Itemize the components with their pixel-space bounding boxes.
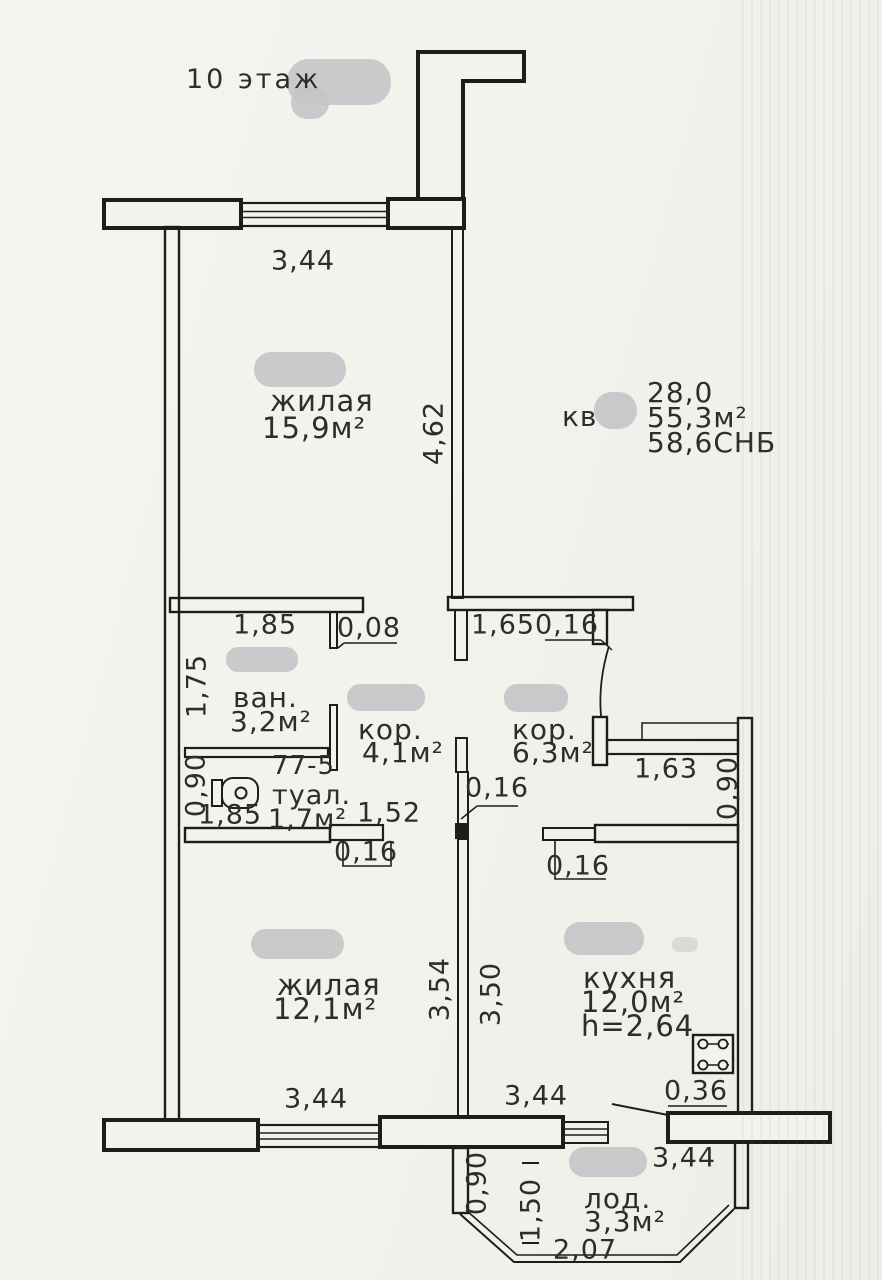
bottom-wall-mid-block bbox=[380, 1117, 563, 1147]
redaction-smudge bbox=[672, 937, 698, 952]
room-living2-area: 12,1м² bbox=[273, 992, 377, 1026]
loggia-right-stub bbox=[735, 1142, 748, 1208]
dim-hall-opening: 1,65 bbox=[471, 610, 535, 641]
redaction-blob-apartment-no bbox=[594, 392, 637, 429]
dim-living1-depth: 4,62 bbox=[419, 401, 450, 465]
redaction-blob-kitchen bbox=[564, 922, 644, 955]
floor-plan-scan: 10 этаж кв 28,0 55,3м² 58,6СНБ жилая 15,… bbox=[0, 0, 882, 1280]
bottom-wall-left-block bbox=[104, 1120, 258, 1150]
dim-kitchen-depth: 3,50 bbox=[476, 962, 507, 1026]
room-hall2-area: 6,3м² bbox=[512, 736, 594, 769]
dim-bath-jamb: 0,08 bbox=[337, 613, 401, 644]
redaction-blob-living2 bbox=[251, 929, 344, 959]
redaction-blob-bath bbox=[226, 647, 298, 672]
dim-mid-wall: 0,16 bbox=[465, 773, 529, 804]
room-living1-area: 15,9м² bbox=[262, 411, 366, 445]
left-exterior-wall bbox=[165, 227, 179, 1123]
entry-door-leaf bbox=[600, 646, 609, 716]
floor-title: 10 этаж bbox=[186, 64, 321, 95]
room-hall1-area: 4,1м² bbox=[362, 736, 444, 769]
dim-hall-jamb: 0,16 bbox=[535, 610, 599, 641]
hall-top-wall bbox=[448, 597, 633, 610]
dim-hall-window: 3,44 bbox=[504, 1081, 568, 1112]
room-kitchen-ceiling: h=2,64 bbox=[581, 1009, 694, 1043]
unit-mark: 77-5 bbox=[272, 751, 335, 781]
kitchen-top-wall bbox=[595, 825, 738, 842]
dim-living2-window: 3,44 bbox=[284, 1084, 348, 1115]
central-wall-stub-b bbox=[456, 738, 467, 772]
dim-wc-opening: 1,52 bbox=[357, 798, 421, 829]
window-hall-balcony bbox=[563, 1122, 608, 1143]
dim-stove-gap: 0,36 bbox=[664, 1076, 728, 1107]
dim-loggia-side: 0,90 bbox=[462, 1151, 493, 1215]
apartment-snb-area: 58,6СНБ bbox=[647, 426, 776, 459]
dim-bath-width: 1,85 bbox=[233, 610, 297, 641]
dim-window-top: 3,44 bbox=[271, 246, 335, 277]
dim-loggia-width: 2,07 bbox=[553, 1235, 617, 1266]
dim-kitchen-wall: 3,44 bbox=[652, 1143, 716, 1174]
stove-icon bbox=[693, 1035, 733, 1073]
dim-loggia-depth: 1,50 bbox=[516, 1178, 547, 1242]
central-wall-lower bbox=[458, 839, 468, 1118]
redaction-blob-loggia bbox=[569, 1147, 647, 1177]
dim-bath-depth: 1,75 bbox=[182, 654, 213, 718]
redaction-blob-hall1 bbox=[347, 684, 425, 711]
balcony-door-leaf bbox=[612, 1104, 668, 1115]
entry-door-jamb-lower bbox=[593, 717, 607, 765]
entry-nook-wall bbox=[607, 740, 738, 754]
dim-living2-depth: 3,54 bbox=[425, 957, 456, 1021]
entry-closet bbox=[642, 723, 738, 740]
kitchen-top-wall-stub bbox=[543, 828, 595, 840]
window-top bbox=[241, 203, 388, 226]
redaction-blob-hall2 bbox=[504, 684, 568, 712]
dim-entry-depth: 0,90 bbox=[713, 756, 744, 820]
room-bath-area: 3,2м² bbox=[230, 705, 312, 738]
top-wall-left-block bbox=[104, 200, 241, 228]
dim-entry-width: 1,63 bbox=[634, 754, 698, 785]
dim-wc-width: 1,85 bbox=[198, 800, 262, 831]
room-loggia-area: 3,3м² bbox=[584, 1205, 666, 1238]
window-living2 bbox=[258, 1125, 380, 1147]
top-wall-right-block bbox=[388, 199, 464, 228]
redaction-blob-living1 bbox=[254, 352, 346, 387]
apartment-prefix: кв bbox=[562, 400, 597, 433]
central-wall-stub-a bbox=[455, 610, 467, 660]
central-wall-upper bbox=[452, 228, 463, 598]
dim-leader bbox=[338, 643, 344, 648]
dim-kitchen-jamb: 0,16 bbox=[546, 851, 610, 882]
dim-wc-jamb: 0,16 bbox=[334, 837, 398, 868]
vent-shaft-wall bbox=[418, 52, 524, 200]
bath-door-jamb bbox=[330, 612, 337, 648]
wall-thickness-mark bbox=[455, 823, 469, 839]
bottom-wall-right-block bbox=[668, 1113, 830, 1142]
room-wc-area: 1,7м² bbox=[268, 804, 347, 835]
plan-drawing bbox=[0, 0, 882, 1280]
